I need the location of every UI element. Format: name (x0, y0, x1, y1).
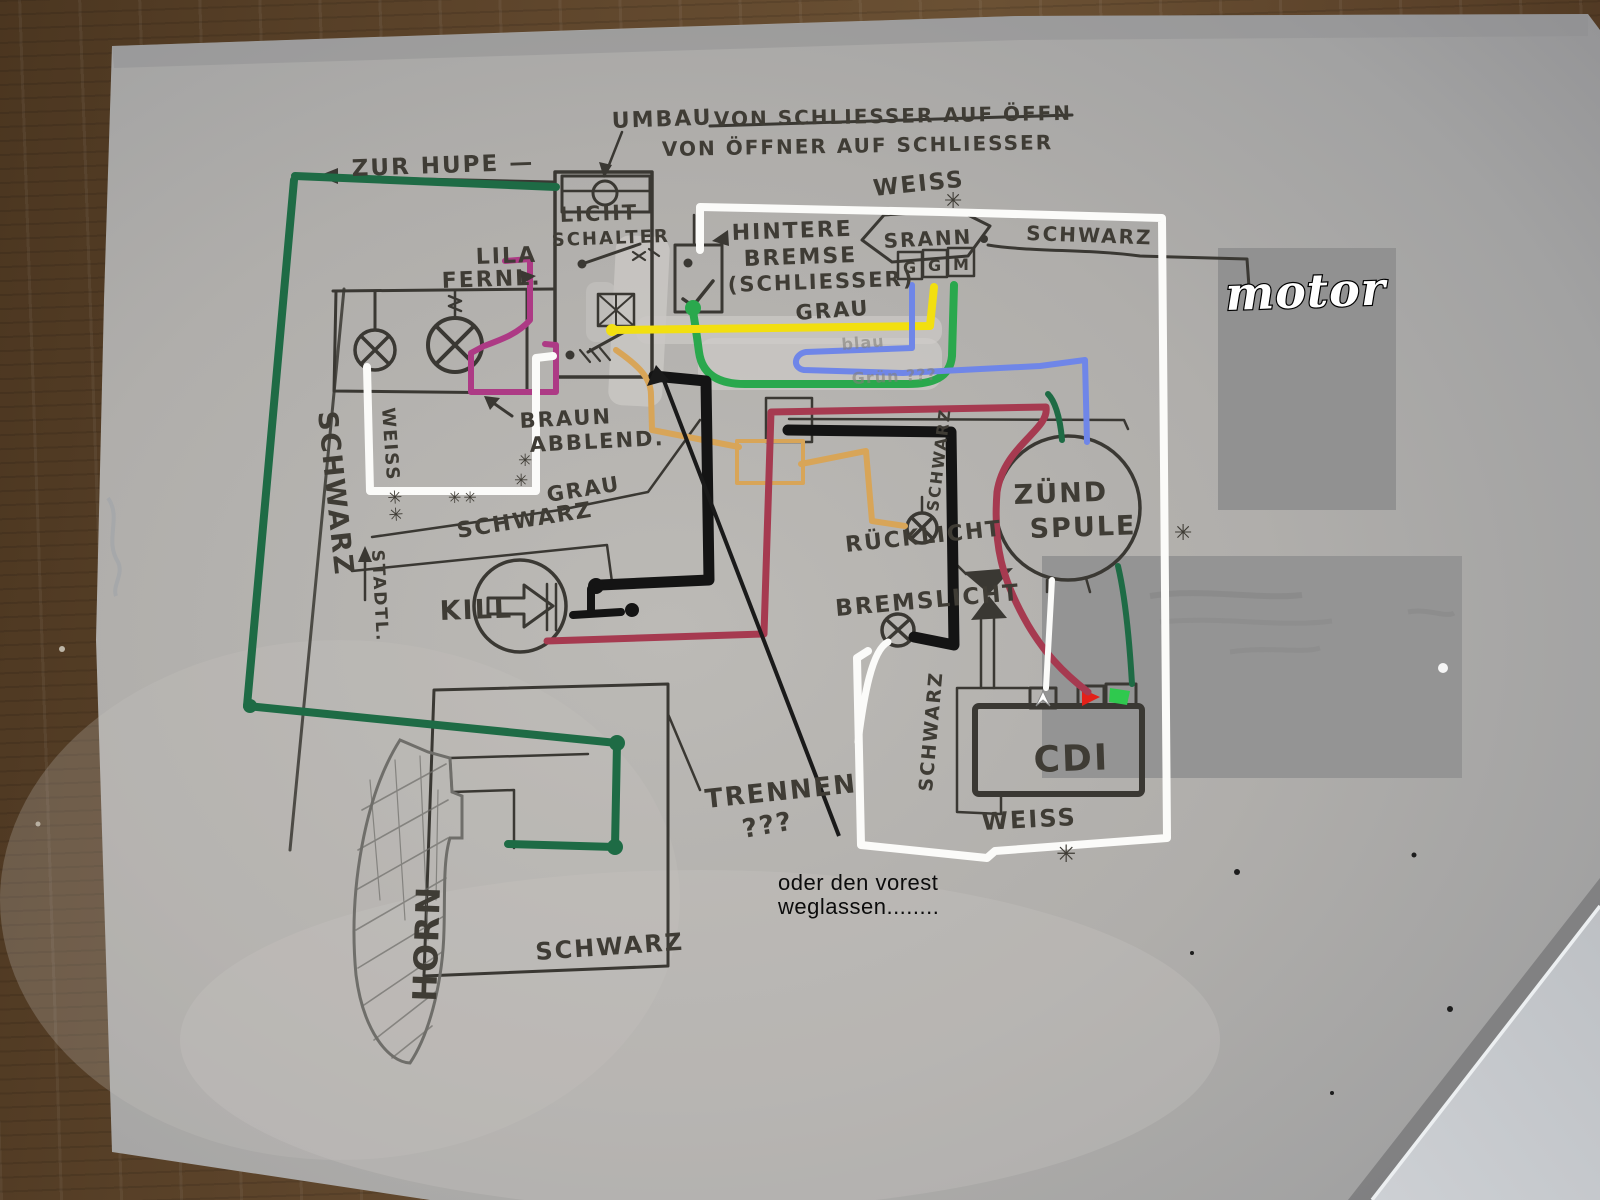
label-pin-m: M (953, 255, 971, 274)
label-zuend: ZÜND (1013, 475, 1109, 511)
label-motor: motor (1224, 261, 1389, 321)
label-horn: HORN (405, 884, 448, 1002)
label-umbau: UMBAU (611, 105, 713, 134)
label-ast-top: ✳ (944, 189, 964, 214)
label-schwarz-top: SCHWARZ (1026, 221, 1153, 249)
label-hintere: HINTERE (731, 217, 853, 246)
label-typed-line2: weglassen........ (777, 894, 939, 919)
label-srann: SRANN (883, 224, 973, 253)
label-licht: LICHT (559, 200, 638, 227)
label-ast-pair: ✳✳ (448, 488, 479, 507)
label-bremse: BREMSE (743, 243, 857, 272)
label-weiss-bottom: WEISS (981, 803, 1078, 836)
label-pin-g2: G (928, 256, 943, 275)
cdi-pin-green-blob (1109, 688, 1130, 705)
label-kill: KILL (439, 593, 513, 627)
label-typed-line1: oder den vorest (778, 870, 938, 895)
label-ast-a: ✳ (518, 451, 534, 471)
label-spule: SPULE (1029, 510, 1137, 545)
label-ast-right: ✳ (1174, 521, 1194, 546)
label-ast-b: ✳ (514, 471, 530, 491)
label-ast-bottom: ✳ (1056, 840, 1078, 868)
label-cdi: CDI (1033, 737, 1110, 781)
wiring-diagram-photo: UMBAU VON SCHLIESSER AUF ÖFFN VON ÖFFNER… (0, 0, 1600, 1200)
label-blau-faint: blau (841, 331, 886, 354)
label-schalter: SCHALTER (551, 226, 670, 251)
